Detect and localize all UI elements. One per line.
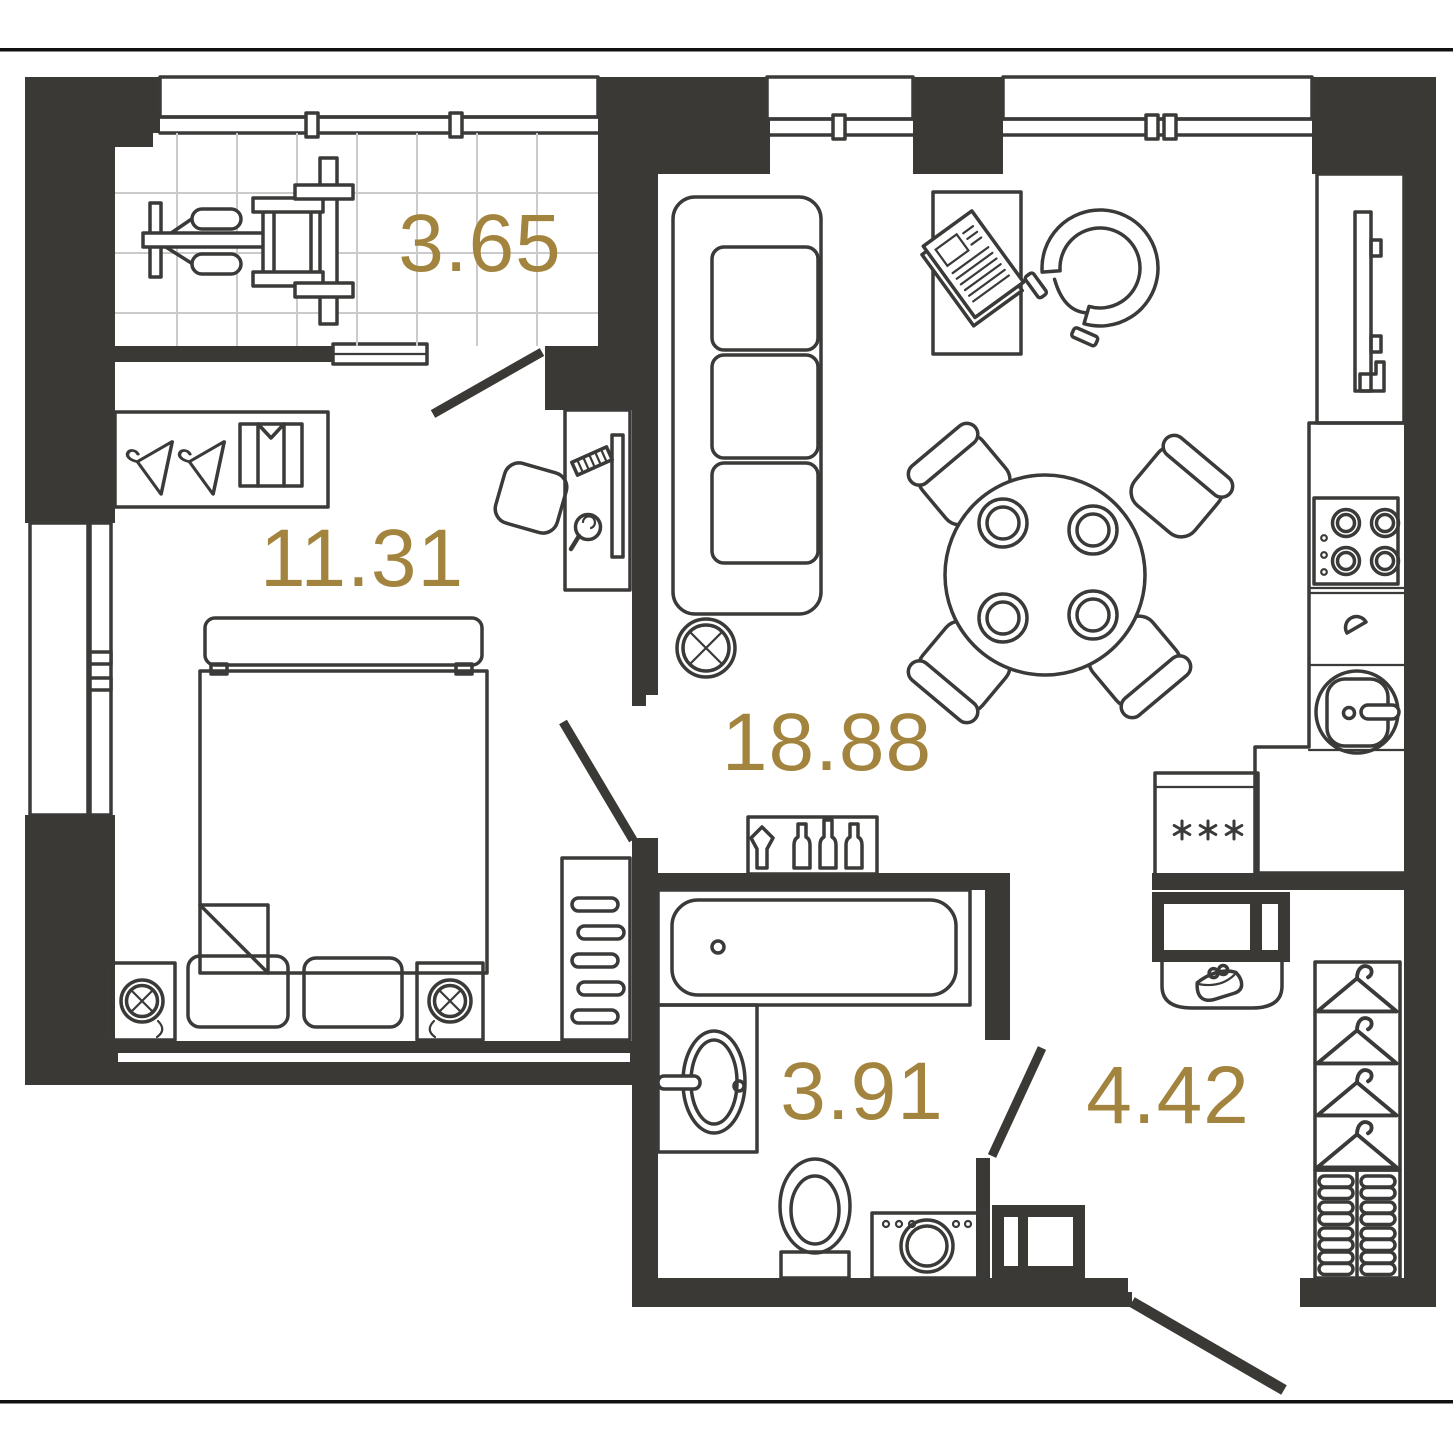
living-window-right-icon — [1003, 77, 1312, 139]
balcony-window-icon — [160, 77, 598, 137]
washing-machine-icon — [872, 1213, 984, 1278]
hanger-icon — [1317, 1122, 1396, 1167]
folded-shirt-icon — [240, 424, 302, 486]
floor-plan-page: 3.65 11.31 18.88 3.91 4.42 — [0, 0, 1453, 1453]
balcony-area-label: 3.65 — [398, 198, 562, 289]
hob-icon — [1314, 498, 1399, 584]
bedroom-area-label: 11.31 — [260, 513, 464, 604]
dining-chair-icon — [1121, 431, 1237, 546]
mouse-icon — [571, 515, 601, 550]
kitchen-sink-icon — [1316, 671, 1399, 753]
dining-table-icon — [945, 475, 1145, 675]
blanket-fold — [200, 905, 268, 973]
bathroom-area-label: 3.91 — [780, 1046, 944, 1137]
bedroom-door-leaf-icon — [563, 722, 633, 840]
bathtub-icon — [658, 890, 970, 1005]
living-kitchen-area-label: 18.88 — [722, 697, 932, 788]
fridge-icon — [1155, 773, 1258, 875]
monitor-icon — [612, 435, 623, 557]
pillow-icon — [188, 956, 288, 1027]
bottle-shelf-icon — [748, 817, 877, 874]
wardrobe-icon — [115, 412, 328, 507]
console-purse-icon — [1162, 962, 1282, 1008]
bottom-rule — [0, 1400, 1453, 1404]
hanger-icon — [173, 433, 225, 494]
ceiling-lamp-icon — [677, 619, 735, 677]
pillow-icon — [304, 958, 402, 1027]
balcony-door-threshold — [333, 344, 427, 364]
tv-icon — [1355, 212, 1384, 391]
storage-niche-entrance-icon — [992, 1205, 1085, 1278]
desk-icon — [565, 410, 630, 590]
washbasin-icon — [658, 1005, 757, 1152]
hallway-area-label: 4.42 — [1086, 1050, 1250, 1141]
sofa-icon — [673, 197, 821, 614]
wardrobe-icon — [1315, 962, 1400, 1278]
double-bed-icon — [188, 618, 487, 1027]
armchair-icon — [1018, 203, 1164, 353]
hanger-icon — [1317, 1018, 1396, 1063]
hanger-icon — [1317, 966, 1396, 1011]
storage-niche-icon — [1152, 892, 1290, 962]
cabinet-handle-icon — [1346, 617, 1366, 633]
hanger-icon — [1317, 1070, 1396, 1115]
balcony-door-leaf-icon — [433, 352, 542, 414]
toilet-icon — [780, 1159, 850, 1278]
desk-chair-icon — [492, 459, 571, 536]
living-window-left-icon — [767, 77, 913, 139]
entrance-door-leaf-icon — [1132, 1302, 1284, 1390]
nightstand-lamp-icon — [109, 963, 175, 1040]
radiator-icon — [562, 858, 630, 1040]
bedroom-window-icon — [30, 523, 111, 815]
floor-plan-drawing: 3.65 11.31 18.88 3.91 4.42 — [0, 0, 1453, 1453]
bathroom-door-leaf-icon — [992, 1048, 1042, 1156]
kitchen-counter — [1255, 174, 1404, 873]
top-rule — [0, 48, 1453, 52]
dining-set — [904, 419, 1237, 727]
exercise-bike-icon — [143, 158, 353, 324]
keyboard-icon — [572, 447, 612, 475]
shoe-shelf-icon — [1315, 1170, 1400, 1278]
hanger-icon — [121, 433, 173, 494]
coffee-table-icon — [918, 192, 1027, 354]
